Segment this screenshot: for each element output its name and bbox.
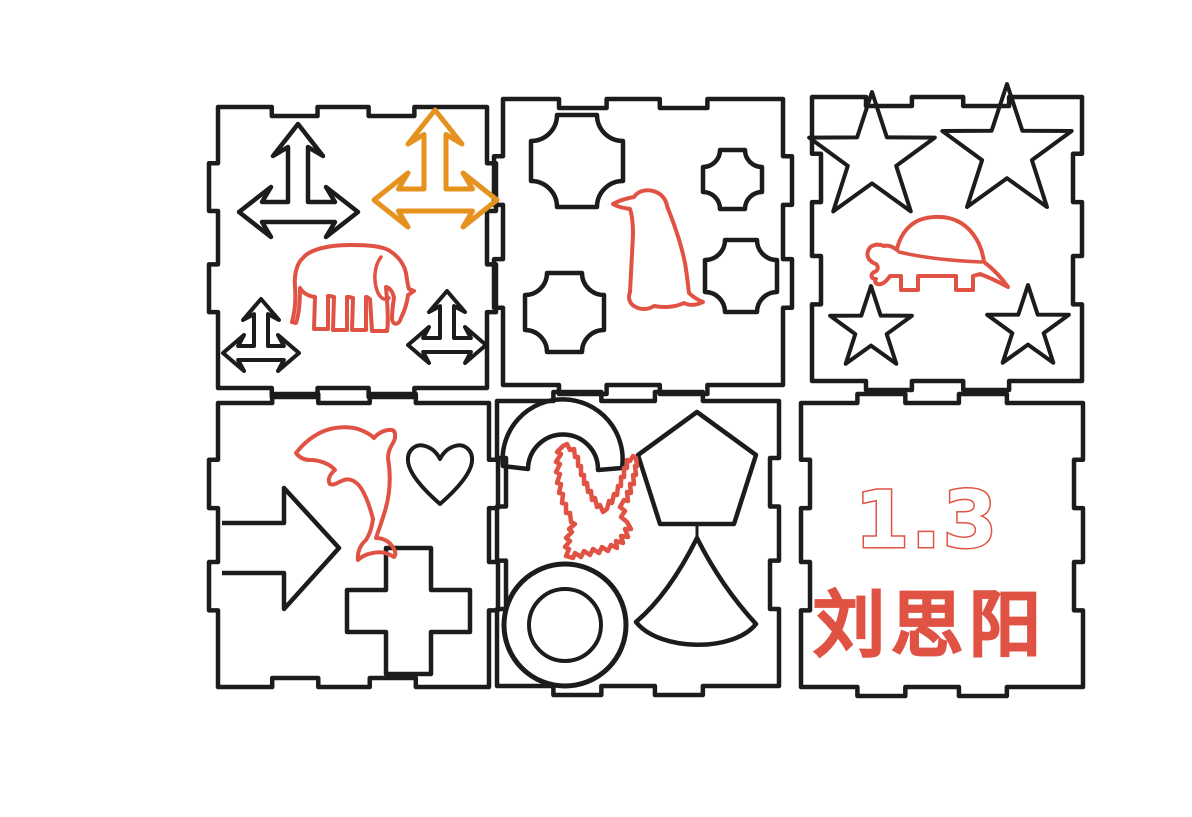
star-large-left [809,92,935,211]
design-svg: 1.3 刘思阳 [0,0,1192,817]
concave-square-medium-left [525,273,604,352]
elephant-engraving [292,245,414,331]
ring-outer-circle [504,564,626,686]
pentagon-cutout [638,412,756,524]
panel-top-middle [494,99,792,394]
penguin-engraving [613,190,703,309]
right-arrow-cutout [222,488,339,609]
heart-cutout [408,445,472,504]
three-way-arrow-small-right [408,291,486,363]
three-way-arrow-small-left [223,299,299,371]
concave-square-large [531,115,623,207]
laser-cut-design-canvas: 1.3 刘思阳 [0,0,1192,817]
arch-cutout [503,399,623,470]
panel-bottom-left [209,394,498,687]
ring-inner-circle [529,589,601,661]
engraved-number-text: 1.3 [855,476,999,566]
concave-square-medium-right [705,240,777,312]
star-small-right [987,285,1069,363]
plus-cross-cutout [347,548,470,674]
three-way-arrow-large-orange [374,110,497,227]
engraved-text-group: 1.3 刘思阳 [813,476,1047,667]
dolphin-engraving [296,427,395,560]
engraved-name-text: 刘思阳 [813,583,1047,667]
turtle-shell-line [899,252,981,262]
turtle-engraving [867,217,1008,290]
star-small-left [830,286,912,364]
concave-square-small [703,150,762,209]
three-way-arrow-large-black [239,124,358,237]
bell-cone-cutout [636,538,756,645]
